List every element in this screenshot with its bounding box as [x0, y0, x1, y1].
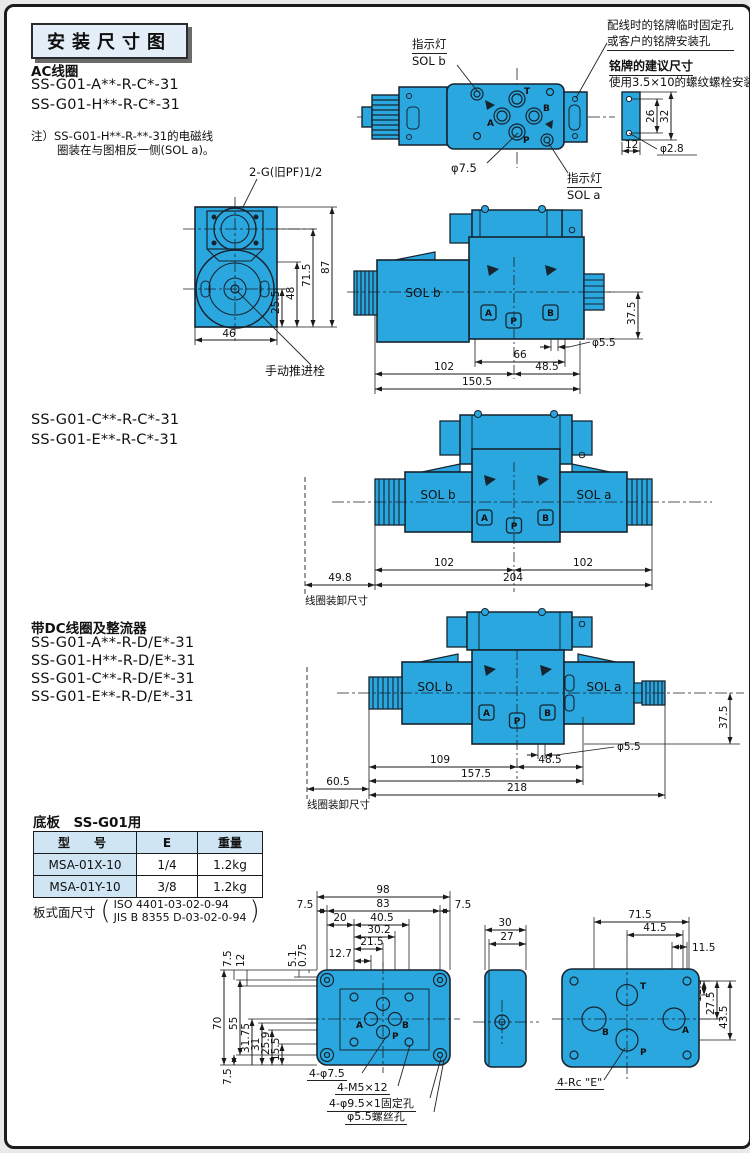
model-dc-1: SS-G01-A**-R-D/E*-31: [31, 635, 194, 651]
cell-e: 1/4: [137, 854, 198, 876]
end-view-body: [195, 207, 277, 328]
page-title: 安装尺寸图: [31, 23, 188, 59]
svg-text:12: 12: [625, 139, 638, 151]
svg-text:SOL b: SOL b: [417, 680, 452, 694]
svg-text:21.5: 21.5: [360, 936, 383, 948]
ports-hole-label: 4-φ7.5: [307, 1067, 347, 1081]
svg-text:15.5: 15.5: [270, 1038, 282, 1061]
svg-text:218: 218: [507, 782, 527, 794]
surface-size-label: 板式面尺寸: [33, 902, 96, 921]
dc-valve-view: SOL b SOL a A P B: [282, 607, 750, 812]
single-solenoid-side-view: SOL b A P B: [347, 197, 657, 407]
svg-text:A: A: [485, 309, 492, 319]
model-ac-1: SS-G01-A**-R-C*-31: [31, 77, 179, 93]
svg-text:25.5: 25.5: [270, 291, 282, 314]
svg-text:SOL b: SOL b: [420, 488, 455, 502]
svg-text:B: B: [402, 1021, 409, 1031]
dc-top-block: [447, 609, 592, 651]
svg-text:φ5.5: φ5.5: [592, 337, 616, 349]
svg-text:线圈装卸尺寸: 线圈装卸尺寸: [307, 798, 370, 811]
paren-open: (: [101, 898, 111, 924]
cell-e: 3/8: [137, 876, 198, 898]
svg-text:B: B: [547, 309, 554, 319]
svg-text:66: 66: [513, 349, 527, 361]
svg-text:150.5: 150.5: [462, 376, 492, 388]
svg-text:37.5: 37.5: [626, 302, 638, 325]
svg-text:27: 27: [500, 931, 513, 943]
svg-text:12.7: 12.7: [329, 948, 352, 960]
svg-text:7.5: 7.5: [222, 950, 234, 967]
svg-text:7.5: 7.5: [297, 899, 314, 911]
svg-text:43.5: 43.5: [718, 1006, 730, 1029]
svg-text:SOL a: SOL a: [587, 680, 622, 694]
svg-text:37.5: 37.5: [718, 706, 730, 729]
svg-text:46: 46: [222, 328, 236, 340]
svg-text:48.5: 48.5: [535, 361, 558, 373]
svg-text:49.8: 49.8: [328, 572, 351, 584]
svg-text:SOL b: SOL b: [405, 286, 440, 300]
model-dc-2: SS-G01-H**-R-D/E*-31: [31, 653, 196, 669]
model-cde-1: SS-G01-C**-R-C*-31: [31, 412, 179, 428]
svg-text:71.5: 71.5: [301, 264, 313, 287]
svg-text:157.5: 157.5: [461, 768, 491, 780]
svg-text:32: 32: [659, 110, 671, 123]
svg-text:40.5: 40.5: [370, 912, 393, 924]
model-dc-3: SS-G01-C**-R-D/E*-31: [31, 671, 195, 687]
svg-text:109: 109: [430, 754, 450, 766]
col-weight: 重量: [198, 832, 263, 854]
svg-text:48: 48: [285, 287, 297, 300]
svg-text:A: A: [682, 1026, 689, 1036]
svg-text:30.2: 30.2: [367, 924, 390, 936]
svg-text:60.5: 60.5: [326, 776, 349, 788]
svg-text:SOL a: SOL a: [577, 488, 612, 502]
svg-text:102: 102: [573, 557, 593, 569]
svg-text:φ5.5: φ5.5: [617, 741, 641, 753]
svg-text:102: 102: [434, 361, 454, 373]
svg-text:B: B: [602, 1028, 609, 1038]
svg-text:204: 204: [503, 572, 523, 584]
dc-coil-heading: 带DC线圈及整流器: [31, 617, 147, 637]
col-e: E: [137, 832, 198, 854]
svg-text:P: P: [640, 1048, 647, 1058]
svg-text:P: P: [523, 136, 530, 146]
svg-text:87: 87: [320, 261, 332, 274]
svg-text:102: 102: [434, 557, 454, 569]
svg-text:70: 70: [212, 1017, 224, 1030]
svg-text:T: T: [524, 87, 531, 97]
m5-hole-label: 4-M5×12: [335, 1081, 390, 1095]
col-model: 型 号: [34, 832, 137, 854]
baseplate-side-view: 30 27: [477, 897, 555, 1112]
svg-text:线圈装卸尺寸: 线圈装卸尺寸: [305, 594, 368, 607]
svg-text:41.5: 41.5: [643, 922, 666, 934]
svg-text:83: 83: [376, 898, 389, 910]
svg-text:27.5: 27.5: [705, 992, 717, 1015]
svg-text:B: B: [543, 104, 550, 114]
table-header-row: 型 号 E 重量: [34, 832, 263, 854]
svg-text:A: A: [487, 119, 494, 129]
svg-text:A: A: [483, 709, 490, 719]
ac-note-line2: 圈装在与图相反一侧(SOL a)。: [57, 142, 214, 158]
bpb-plate: [552, 957, 717, 1079]
model-ac-2: SS-G01-H**-R-C*-31: [31, 97, 180, 113]
svg-text:7.5: 7.5: [455, 899, 472, 911]
svg-text:B: B: [544, 709, 551, 719]
svg-text:30: 30: [498, 917, 511, 929]
model-dc-4: SS-G01-E**-R-D/E*-31: [31, 689, 194, 705]
svg-text:48.5: 48.5: [538, 754, 561, 766]
rc-port-label: 4-Rc "E": [555, 1076, 604, 1090]
svg-text:B: B: [542, 514, 549, 524]
cell-model: MSA-01Y-10: [34, 876, 137, 898]
double-solenoid-view: SOL b SOL a A P B 102 102 204 49.8 线圈装卸尺: [292, 407, 750, 607]
svg-text:11.5: 11.5: [692, 942, 715, 954]
screw-hole-label: φ5.5螺丝孔: [345, 1108, 407, 1125]
nameplate-note-line1: 配线时的铭牌临时固定孔: [607, 17, 734, 33]
svg-text:7.5: 7.5: [222, 1068, 234, 1085]
svg-text:71.5: 71.5: [628, 909, 651, 921]
catalog-page: 安装尺寸图 AC线圈 SS-G01-A**-R-C*-31 SS-G01-H**…: [4, 4, 750, 1149]
svg-text:55: 55: [228, 1017, 240, 1030]
bp-plate: [307, 962, 460, 1073]
dbl-dims: [305, 570, 652, 585]
nameplate-drawing: 26 32 12 φ2.8: [605, 85, 750, 170]
svg-text:φ2.8: φ2.8: [660, 143, 684, 155]
svg-text:98: 98: [376, 884, 389, 896]
svg-text:20: 20: [333, 912, 346, 924]
svg-text:P: P: [392, 1032, 399, 1042]
svg-text:A: A: [481, 514, 488, 524]
svg-text:A: A: [356, 1021, 363, 1031]
svg-text:26: 26: [645, 109, 657, 123]
sv1-body: [354, 237, 604, 342]
cell-model: MSA-01X-10: [34, 854, 137, 876]
svg-text:12: 12: [235, 954, 247, 967]
svg-text:T: T: [640, 982, 647, 992]
bps-plate: [485, 970, 526, 1067]
baseplate-heading: 底板 SS-G01用: [33, 811, 141, 831]
svg-text:0.75: 0.75: [297, 944, 309, 967]
model-cde-2: SS-G01-E**-R-C*-31: [31, 432, 178, 448]
